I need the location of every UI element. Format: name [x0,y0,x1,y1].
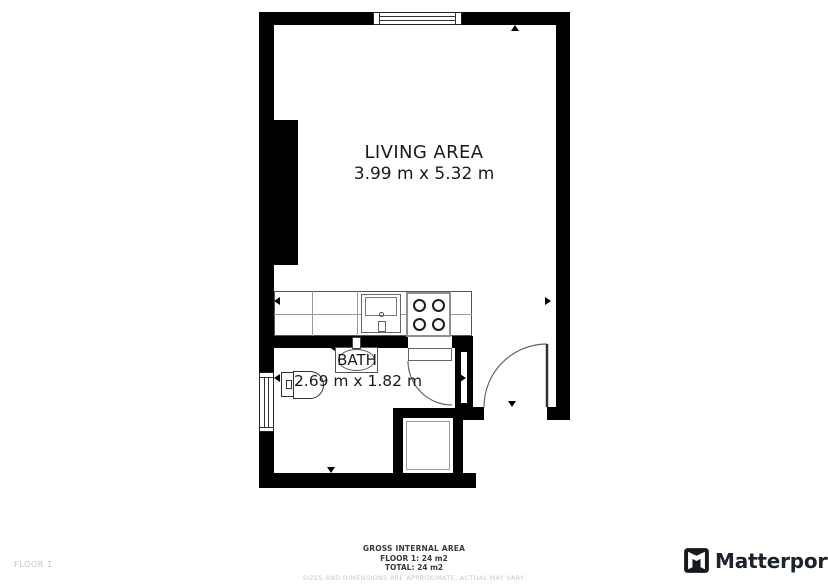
kitchen-sink-faucet [378,321,386,332]
window-top-cap-right [455,13,456,24]
bath-sink-faucet [352,337,361,349]
gross-internal-area-title: GROSS INTERNAL AREA [264,544,564,554]
floor-area-line: FLOOR 1: 24 m2 [264,554,564,564]
window-bath [259,372,274,432]
floorplan: LIVING AREA 3.99 m x 5.32 m BATH 2.69 m … [0,0,828,540]
window-bath-line-2 [268,377,269,427]
marker-arrow-bath-top [329,343,335,351]
window-top [373,12,462,25]
disclaimer-text: SIZES AND DIMENSIONS ARE APPROXIMATE, AC… [264,574,564,583]
wall-entry-bottom-right [547,407,570,420]
living-area-dimensions: 3.99 m x 5.32 m [304,164,544,184]
marker-arrow-top [511,25,519,31]
shower-tray [406,421,450,470]
floor-label: FLOOR 1 [14,560,53,569]
window-top-cap-left [379,13,380,24]
bath-label: BATH [307,351,407,369]
window-top-line-1 [379,16,456,17]
kitchen-sink [361,294,401,333]
burner-bottom-left [413,318,426,331]
floorplan-page: LIVING AREA 3.99 m x 5.32 m BATH 2.69 m … [0,0,828,585]
counter-divider-1 [312,291,313,336]
bath-dimensions: 2.69 m x 1.82 m [277,372,439,390]
burner-bottom-right [432,318,445,331]
kitchen-sink-drain [379,312,384,317]
counter-divider-2 [357,291,358,336]
wall-right [556,12,570,420]
burner-top-left [413,299,426,312]
matterport-logo: Matterport [683,547,828,574]
marker-arrow-living-right [545,297,551,305]
stove [406,292,451,337]
total-area-line: TOTAL: 24 m2 [264,563,564,573]
area-summary: GROSS INTERNAL AREA FLOOR 1: 24 m2 TOTAL… [264,544,564,583]
marker-arrow-living-left [274,297,280,305]
window-bath-cap-bottom [260,427,273,428]
chimney-block [263,120,298,265]
burner-top-right [432,299,445,312]
matterport-wordmark: Matterport [715,549,828,573]
matterport-icon [683,547,710,574]
marker-arrow-bath-bottom [327,467,335,473]
window-bath-cap-top [260,377,273,378]
entry-door-arc [484,344,547,407]
bath-door-leaf [408,348,452,361]
window-top-line-2 [379,20,456,21]
marker-arrow-entry-bottom [508,401,516,407]
living-area-label: LIVING AREA [304,142,544,163]
marker-arrow-bath-entry [460,374,466,382]
window-bath-line-1 [264,377,265,427]
